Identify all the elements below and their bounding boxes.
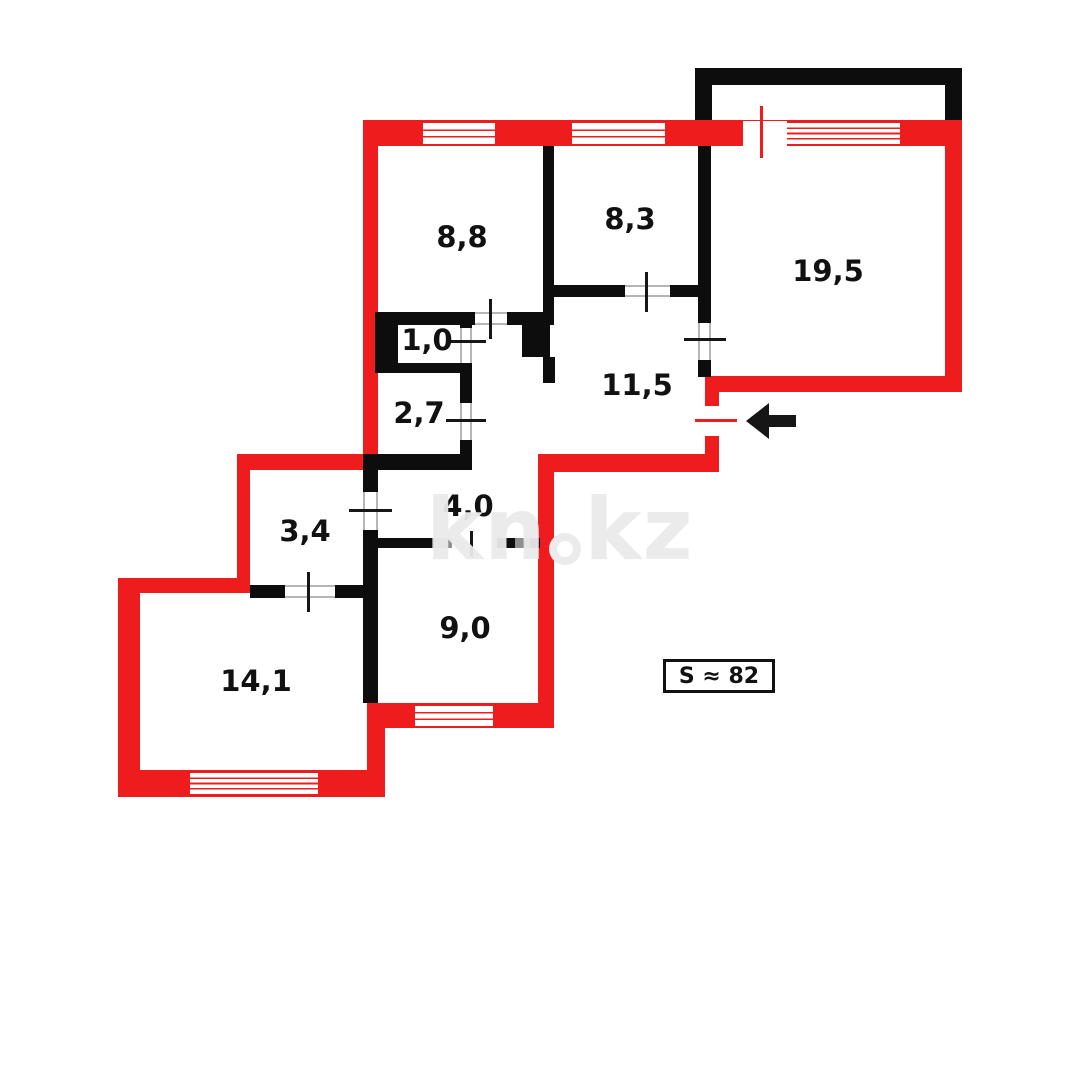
room-area-label-34: 3,4 xyxy=(279,514,330,548)
wall-room27-right-top xyxy=(460,373,472,403)
door-tick-room141 xyxy=(307,572,310,612)
entrance-door-tick xyxy=(695,419,737,422)
wall-pilaster xyxy=(522,312,550,357)
room-area-label-83: 8,3 xyxy=(604,202,655,236)
wall-room83-bottom-left xyxy=(543,285,625,297)
door-opening-room10 xyxy=(460,328,472,363)
balcony-door-tick xyxy=(760,106,763,158)
door-tick-room88 xyxy=(489,299,492,339)
window-room195 xyxy=(787,123,900,144)
window-room141 xyxy=(190,773,318,794)
door-opening-room141 xyxy=(285,585,335,598)
door-tick-room34 xyxy=(349,509,392,512)
wall-room195-bottom xyxy=(705,376,962,392)
wall-entry-above-door xyxy=(705,376,719,406)
room-area-label-195: 19,5 xyxy=(792,254,864,288)
window-room88 xyxy=(423,123,495,144)
wall-room40-room90-a xyxy=(378,538,432,548)
room-area-label-88: 8,8 xyxy=(436,220,487,254)
window-room90 xyxy=(415,706,493,726)
wall-room141-top xyxy=(118,578,250,593)
door-tick-room195 xyxy=(684,338,726,341)
wall-room10-room27-divider xyxy=(375,363,472,373)
wall-room27-right-bottom xyxy=(460,440,472,455)
floor-plan-canvas: 8,8 8,3 19,5 1,0 2,7 11,5 3,4 4,0 9,0 14… xyxy=(0,0,1080,1080)
wall-room88-room83 xyxy=(543,146,554,325)
entrance-arrow-bar xyxy=(767,415,796,427)
room-area-label-141: 14,1 xyxy=(220,664,292,698)
wall-room27-bottom xyxy=(363,454,472,470)
watermark-dot-icon xyxy=(549,533,581,565)
wall-room34-bottom-left xyxy=(250,585,285,598)
wall-hall-bottom xyxy=(538,454,719,472)
window-room83 xyxy=(572,123,665,144)
wall-exterior-right xyxy=(945,120,962,392)
watermark-text-left: kn xyxy=(426,487,546,573)
wall-room141-left xyxy=(118,578,140,797)
wall-room34-top xyxy=(237,454,363,470)
room-area-label-27: 2,7 xyxy=(393,396,444,430)
room-area-label-10: 1,0 xyxy=(401,323,452,357)
balcony-wall-right xyxy=(945,68,962,122)
wall-room34-bottom-right xyxy=(335,585,363,598)
door-opening-room195 xyxy=(698,323,711,360)
wall-core-vertical-bottom xyxy=(363,530,378,703)
wall-room10-right-top xyxy=(460,312,472,328)
door-tick-room27 xyxy=(446,419,486,422)
balcony-wall-top xyxy=(695,68,962,85)
room-area-label-90: 9,0 xyxy=(439,611,490,645)
balcony-wall-left xyxy=(695,68,712,122)
wall-room195-left-upper xyxy=(698,146,711,323)
watermark-text-right: kz xyxy=(584,487,693,573)
wall-room195-left-lower xyxy=(698,360,711,377)
room-area-label-115: 11,5 xyxy=(601,368,673,402)
wall-room34-left xyxy=(237,454,250,593)
door-tick-room83 xyxy=(645,272,648,312)
wall-core-vertical-top xyxy=(363,470,378,492)
total-area-badge: S ≈ 82 xyxy=(663,659,775,693)
entrance-arrow-icon xyxy=(746,403,769,439)
wall-exterior-left-upper xyxy=(363,120,378,470)
watermark: kn kz xyxy=(426,487,694,573)
wall-room10-filler xyxy=(375,312,398,363)
balcony-door-opening xyxy=(743,121,787,146)
wall-below-pilaster xyxy=(543,357,555,383)
